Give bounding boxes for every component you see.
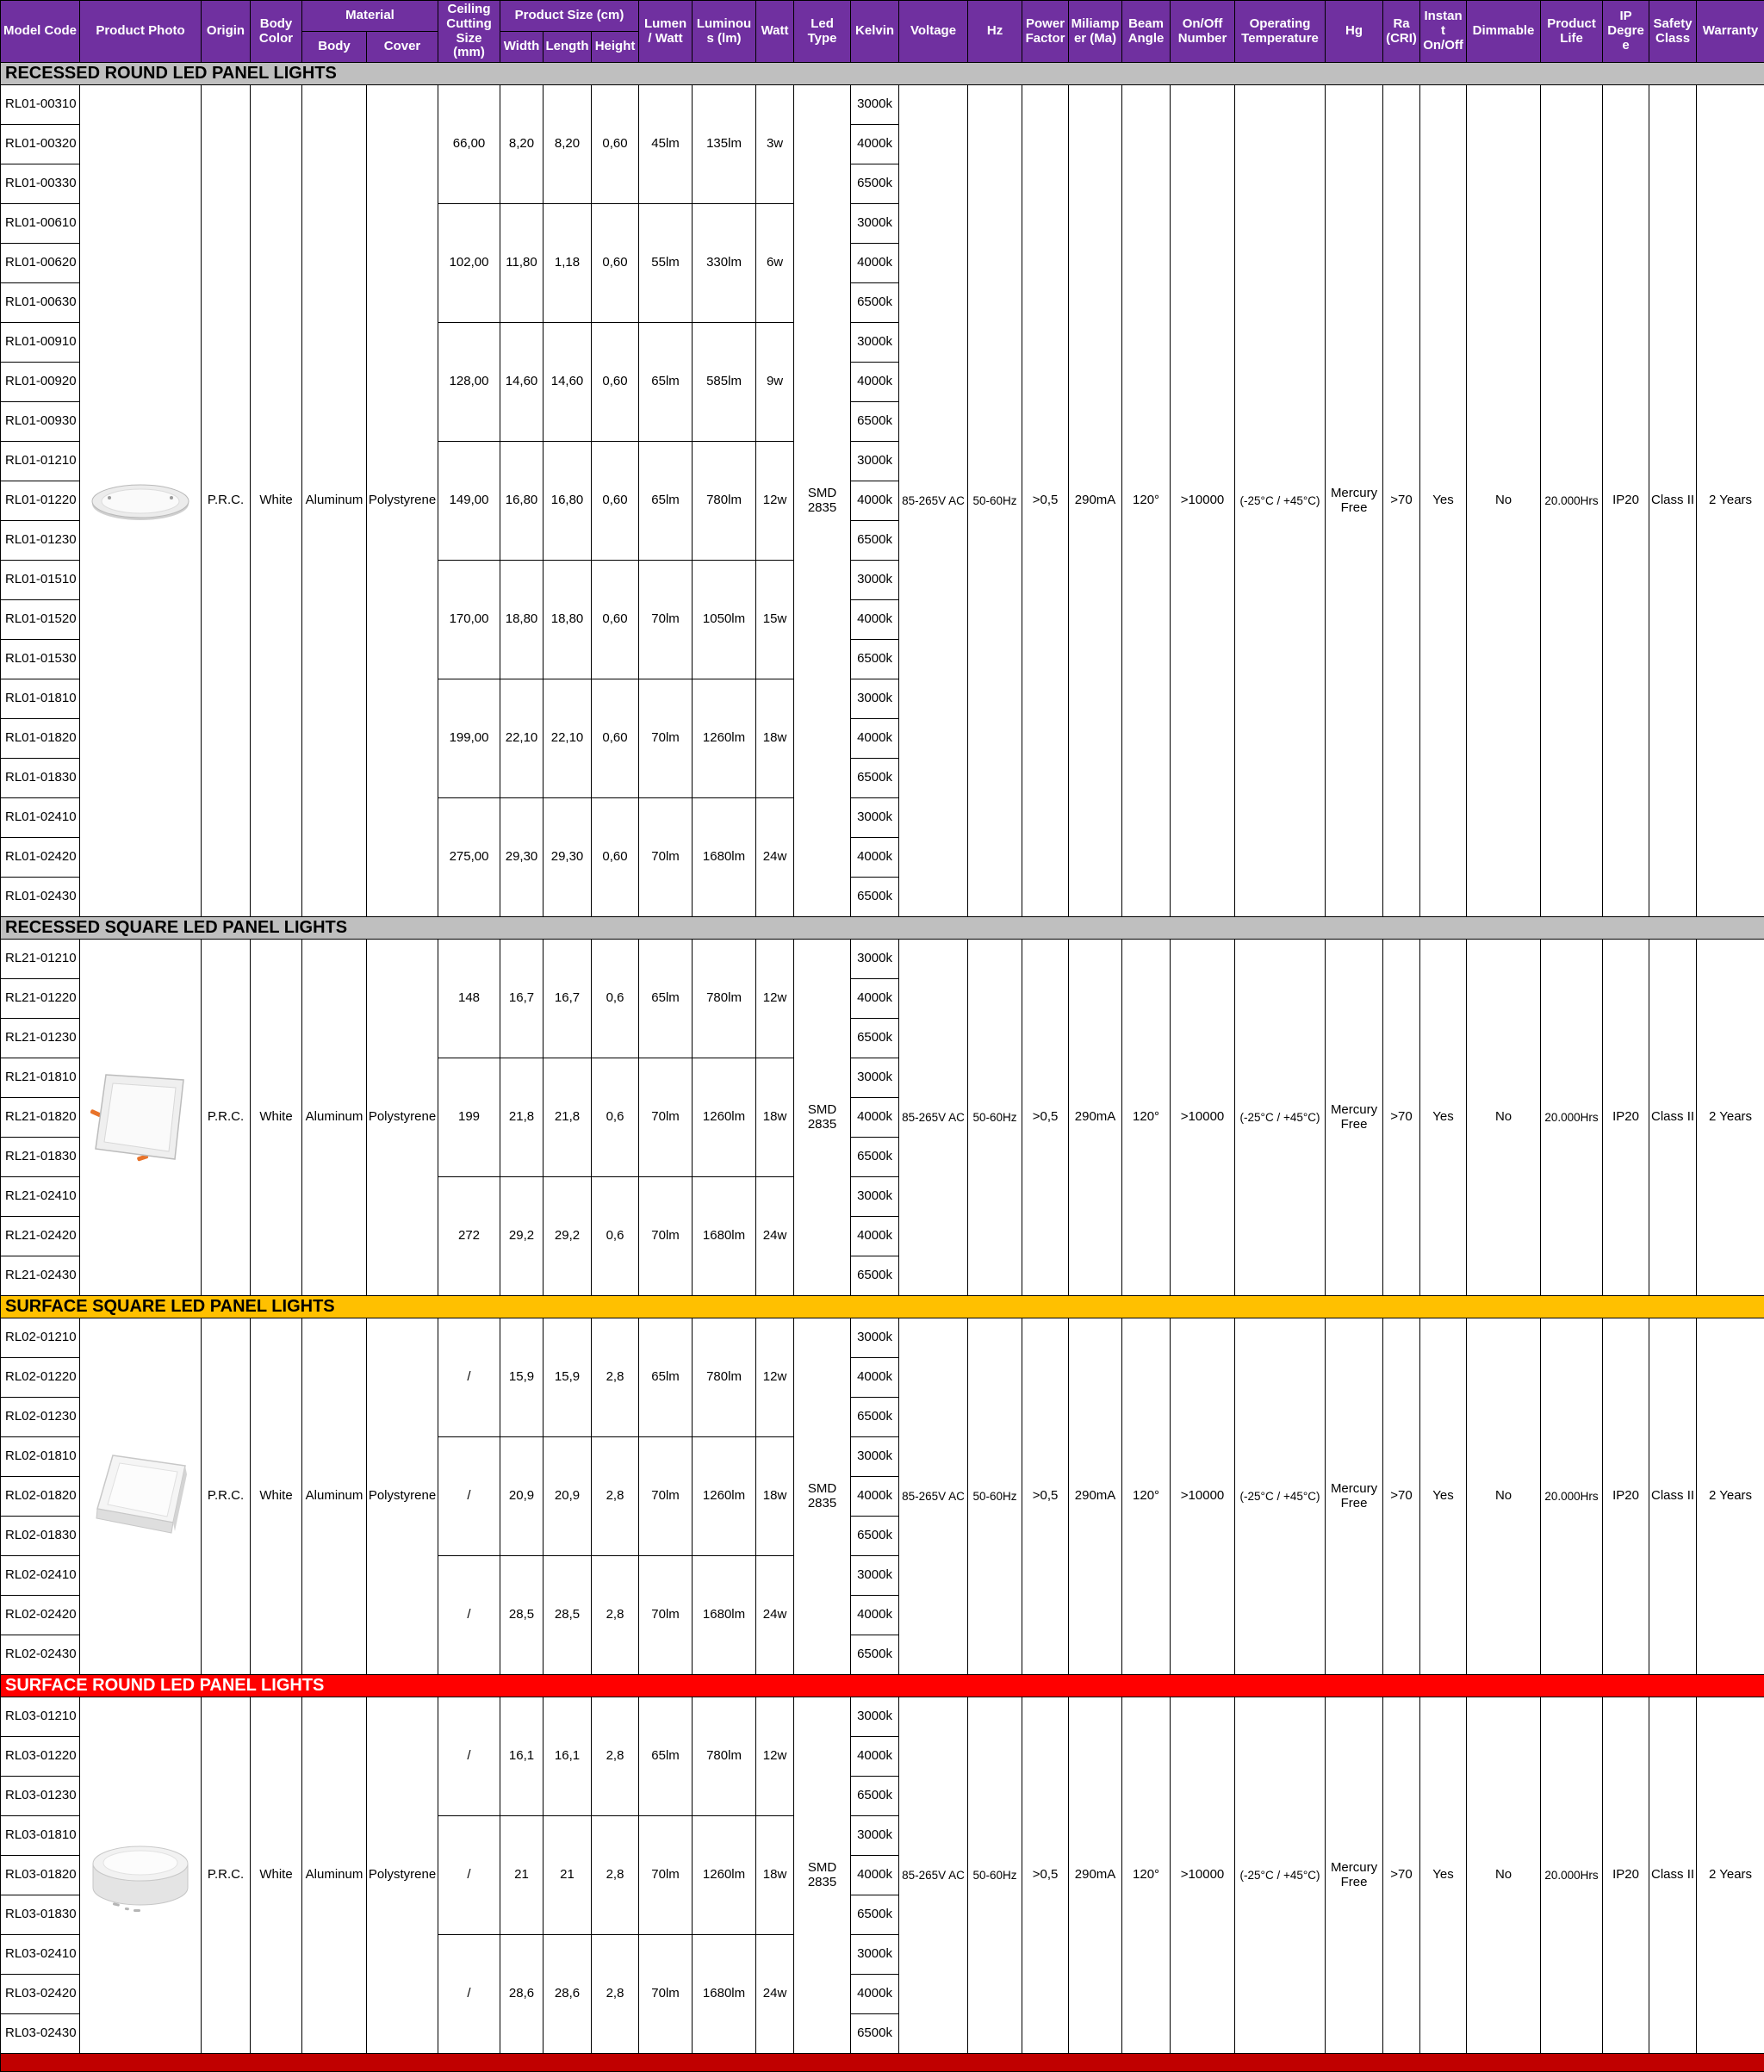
width-cell: 16,80	[500, 442, 543, 561]
model-code-cell: RL01-01830	[1, 759, 80, 798]
product-row: RL01-00310P.R.C.WhiteAluminumPolystyrene…	[1, 85, 1764, 125]
ceiling-cutting-cell: 102,00	[438, 204, 500, 323]
lumen-per-watt-cell: 70lm	[639, 561, 693, 679]
led-panel-spec-table: Model CodeProduct PhotoOriginBody ColorM…	[0, 0, 1764, 2072]
lumen-per-watt-cell: 45lm	[639, 85, 693, 204]
lumen-per-watt-cell: 55lm	[639, 204, 693, 323]
luminous-cell: 330lm	[693, 204, 756, 323]
beam-angle-cell: 120°	[1122, 1697, 1171, 2054]
ceiling-cutting-cell: 128,00	[438, 323, 500, 442]
model-code-cell: RL01-00620	[1, 244, 80, 283]
kelvin-cell: 4000k	[851, 1477, 899, 1517]
model-code-cell: RL02-01830	[1, 1517, 80, 1556]
model-code-cell: RL21-01830	[1, 1138, 80, 1177]
kelvin-cell: 6500k	[851, 521, 899, 561]
width-cell: 16,7	[500, 940, 543, 1058]
hg-cell: Mercury Free	[1326, 85, 1383, 917]
kelvin-cell: 6500k	[851, 2014, 899, 2054]
length-cell: 14,60	[543, 323, 592, 442]
kelvin-cell: 3000k	[851, 1177, 899, 1217]
ceiling-cutting-cell: 170,00	[438, 561, 500, 679]
height-cell: 0,60	[592, 561, 639, 679]
watt-cell: 18w	[756, 1058, 794, 1177]
column-subheader-body: Body	[302, 32, 367, 63]
model-code-cell: RL02-01230	[1, 1398, 80, 1437]
width-cell: 15,9	[500, 1318, 543, 1437]
kelvin-cell: 6500k	[851, 1398, 899, 1437]
dimmable-cell: No	[1467, 1318, 1541, 1675]
operating-temperature-cell: (-25°C / +45°C)	[1235, 85, 1326, 917]
kelvin-cell: 3000k	[851, 1697, 899, 1737]
model-code-cell: RL03-02420	[1, 1975, 80, 2014]
model-code-cell: RL03-01820	[1, 1856, 80, 1895]
height-cell: 0,60	[592, 442, 639, 561]
material-body-cell: Aluminum	[302, 85, 367, 917]
model-code-cell: RL01-00610	[1, 204, 80, 244]
ceiling-cutting-cell: 148	[438, 940, 500, 1058]
model-code-cell: RL01-01220	[1, 481, 80, 521]
product-photo-cell	[80, 85, 202, 917]
hg-cell: Mercury Free	[1326, 1318, 1383, 1675]
body-color-cell: White	[251, 1697, 302, 2054]
column-subheader-height: Height	[592, 32, 639, 63]
kelvin-cell: 3000k	[851, 1318, 899, 1358]
model-code-cell: RL03-01810	[1, 1816, 80, 1856]
kelvin-cell: 3000k	[851, 1556, 899, 1596]
model-code-cell: RL02-02430	[1, 1635, 80, 1675]
spec-sheet: Model CodeProduct PhotoOriginBody ColorM…	[0, 0, 1764, 2072]
model-code-cell: RL02-02420	[1, 1596, 80, 1635]
lumen-per-watt-cell: 65lm	[639, 1697, 693, 1816]
miliamper-cell: 290mA	[1069, 85, 1122, 917]
ceiling-cutting-cell: 199	[438, 1058, 500, 1177]
kelvin-cell: 4000k	[851, 1737, 899, 1777]
hg-cell: Mercury Free	[1326, 940, 1383, 1296]
model-code-cell: RL01-01210	[1, 442, 80, 481]
warranty-cell: 2 Years	[1697, 1697, 1764, 2054]
product-photo-cell	[80, 940, 202, 1296]
watt-cell: 24w	[756, 1556, 794, 1675]
width-cell: 14,60	[500, 323, 543, 442]
height-cell: 0,6	[592, 940, 639, 1058]
ip-degree-cell: IP20	[1603, 1697, 1649, 2054]
model-code-cell: RL01-00330	[1, 164, 80, 204]
luminous-cell: 780lm	[693, 1318, 756, 1437]
kelvin-cell: 3000k	[851, 1816, 899, 1856]
width-cell: 16,1	[500, 1697, 543, 1816]
column-subheader-length: Length	[543, 32, 592, 63]
column-header-operating-temperature: Operating Temperature	[1235, 1, 1326, 63]
kelvin-cell: 3000k	[851, 679, 899, 719]
model-code-cell: RL21-01820	[1, 1098, 80, 1138]
column-header-ip-degree: IP Degree	[1603, 1, 1649, 63]
kelvin-cell: 4000k	[851, 719, 899, 759]
width-cell: 21,8	[500, 1058, 543, 1177]
model-code-cell: RL01-00920	[1, 363, 80, 402]
column-header-lumen-watt: Lumen / Watt	[639, 1, 693, 63]
lumen-per-watt-cell: 70lm	[639, 1556, 693, 1675]
kelvin-cell: 4000k	[851, 125, 899, 164]
table-body: RECESSED ROUND LED PANEL LIGHTSRL01-0031…	[1, 63, 1764, 2072]
section-title: RECESSED SQUARE LED PANEL LIGHTS	[1, 917, 1764, 940]
ceiling-cutting-cell: 149,00	[438, 442, 500, 561]
product-life-cell: 20.000Hrs	[1541, 940, 1603, 1296]
beam-angle-cell: 120°	[1122, 940, 1171, 1296]
model-code-cell: RL21-01210	[1, 940, 80, 979]
dimmable-cell: No	[1467, 85, 1541, 917]
model-code-cell: RL02-01810	[1, 1437, 80, 1477]
luminous-cell: 1050lm	[693, 561, 756, 679]
ceiling-cutting-cell: /	[438, 1437, 500, 1556]
model-code-cell: RL01-00320	[1, 125, 80, 164]
beam-angle-cell: 120°	[1122, 85, 1171, 917]
instant-on-off-cell: Yes	[1420, 1697, 1467, 2054]
column-header-led-type: Led Type	[794, 1, 851, 63]
model-code-cell: RL03-01220	[1, 1737, 80, 1777]
model-code-cell: RL03-01210	[1, 1697, 80, 1737]
led-type-cell: SMD 2835	[794, 940, 851, 1296]
product-row: RL03-01210P.R.C.WhiteAluminumPolystyrene…	[1, 1697, 1764, 1737]
power-factor-cell: >0,5	[1022, 85, 1069, 917]
model-code-cell: RL03-02410	[1, 1935, 80, 1975]
column-header-hg: Hg	[1326, 1, 1383, 63]
ceiling-cutting-cell: 272	[438, 1177, 500, 1296]
model-code-cell: RL01-00930	[1, 402, 80, 442]
width-cell: 28,5	[500, 1556, 543, 1675]
watt-cell: 24w	[756, 798, 794, 917]
lumen-per-watt-cell: 65lm	[639, 323, 693, 442]
model-code-cell: RL03-01230	[1, 1777, 80, 1816]
kelvin-cell: 6500k	[851, 283, 899, 323]
column-header-hz: Hz	[968, 1, 1022, 63]
width-cell: 28,6	[500, 1935, 543, 2054]
safety-class-cell: Class II	[1649, 940, 1697, 1296]
lumen-per-watt-cell: 70lm	[639, 1816, 693, 1935]
column-header-body-color: Body Color	[251, 1, 302, 63]
section-title: SURFACE ROUND LED PANEL LIGHTS	[1, 1675, 1764, 1697]
luminous-cell: 1680lm	[693, 1935, 756, 2054]
material-cover-cell: Polystyrene	[367, 1697, 438, 2054]
kelvin-cell: 4000k	[851, 979, 899, 1019]
ra-cri-cell: >70	[1383, 85, 1420, 917]
column-header-instant-on-off: Instant On/Off	[1420, 1, 1467, 63]
product-row: RL02-01210P.R.C.WhiteAluminumPolystyrene…	[1, 1318, 1764, 1358]
watt-cell: 12w	[756, 940, 794, 1058]
kelvin-cell: 4000k	[851, 1098, 899, 1138]
product-life-cell: 20.000Hrs	[1541, 85, 1603, 917]
dimmable-cell: No	[1467, 940, 1541, 1296]
safety-class-cell: Class II	[1649, 1318, 1697, 1675]
lumen-per-watt-cell: 70lm	[639, 798, 693, 917]
model-code-cell: RL01-01230	[1, 521, 80, 561]
luminous-cell: 1260lm	[693, 1437, 756, 1556]
watt-cell: 15w	[756, 561, 794, 679]
material-cover-cell: Polystyrene	[367, 1318, 438, 1675]
model-code-cell: RL02-02410	[1, 1556, 80, 1596]
origin-cell: P.R.C.	[202, 1318, 251, 1675]
on-off-number-cell: >10000	[1171, 1318, 1235, 1675]
hz-cell: 50-60Hz	[968, 940, 1022, 1296]
model-code-cell: RL21-02410	[1, 1177, 80, 1217]
column-header-product-size: Product Size (cm)	[500, 1, 639, 32]
kelvin-cell: 6500k	[851, 1517, 899, 1556]
height-cell: 0,60	[592, 323, 639, 442]
column-subheader-cover: Cover	[367, 32, 438, 63]
luminous-cell: 135lm	[693, 85, 756, 204]
watt-cell: 6w	[756, 204, 794, 323]
ceiling-cutting-cell: /	[438, 1556, 500, 1675]
kelvin-cell: 3000k	[851, 85, 899, 125]
luminous-cell: 1260lm	[693, 1816, 756, 1935]
model-code-cell: RL02-01210	[1, 1318, 80, 1358]
model-code-cell: RL02-01820	[1, 1477, 80, 1517]
kelvin-cell: 6500k	[851, 1635, 899, 1675]
column-header-material: Material	[302, 1, 438, 32]
watt-cell: 18w	[756, 679, 794, 798]
model-code-cell: RL02-01220	[1, 1358, 80, 1398]
power-factor-cell: >0,5	[1022, 940, 1069, 1296]
length-cell: 29,2	[543, 1177, 592, 1296]
material-cover-cell: Polystyrene	[367, 940, 438, 1296]
watt-cell: 9w	[756, 323, 794, 442]
voltage-cell: 85-265V AC	[899, 1697, 968, 2054]
dimmable-cell: No	[1467, 1697, 1541, 2054]
ra-cri-cell: >70	[1383, 1697, 1420, 2054]
height-cell: 0,60	[592, 85, 639, 204]
kelvin-cell: 3000k	[851, 442, 899, 481]
length-cell: 16,7	[543, 940, 592, 1058]
column-header-product-photo: Product Photo	[80, 1, 202, 63]
width-cell: 11,80	[500, 204, 543, 323]
width-cell: 21	[500, 1816, 543, 1935]
led-type-cell: SMD 2835	[794, 1697, 851, 2054]
kelvin-cell: 4000k	[851, 244, 899, 283]
length-cell: 21,8	[543, 1058, 592, 1177]
model-code-cell: RL01-01530	[1, 640, 80, 679]
watt-cell: 12w	[756, 1318, 794, 1437]
hz-cell: 50-60Hz	[968, 1318, 1022, 1675]
width-cell: 18,80	[500, 561, 543, 679]
column-header-safety-class: Safety Class	[1649, 1, 1697, 63]
miliamper-cell: 290mA	[1069, 1697, 1122, 2054]
product-row: RL21-01210P.R.C.WhiteAluminumPolystyrene…	[1, 940, 1764, 979]
kelvin-cell: 3000k	[851, 940, 899, 979]
kelvin-cell: 4000k	[851, 1975, 899, 2014]
operating-temperature-cell: (-25°C / +45°C)	[1235, 1697, 1326, 2054]
height-cell: 2,8	[592, 1935, 639, 2054]
model-code-cell: RL01-00310	[1, 85, 80, 125]
model-code-cell: RL01-00910	[1, 323, 80, 363]
model-code-cell: RL21-02430	[1, 1256, 80, 1296]
watt-cell: 12w	[756, 442, 794, 561]
kelvin-cell: 6500k	[851, 640, 899, 679]
column-header-product-life: Product Life	[1541, 1, 1603, 63]
voltage-cell: 85-265V AC	[899, 1318, 968, 1675]
kelvin-cell: 3000k	[851, 323, 899, 363]
model-code-cell: RL03-02430	[1, 2014, 80, 2054]
height-cell: 0,60	[592, 204, 639, 323]
length-cell: 22,10	[543, 679, 592, 798]
column-header-luminous: Luminous (lm)	[693, 1, 756, 63]
ip-degree-cell: IP20	[1603, 940, 1649, 1296]
model-code-cell: RL01-01810	[1, 679, 80, 719]
kelvin-cell: 4000k	[851, 363, 899, 402]
ceiling-cutting-cell: /	[438, 1935, 500, 2054]
column-header-on-off-number: On/Off Number	[1171, 1, 1235, 63]
kelvin-cell: 6500k	[851, 878, 899, 917]
column-header-warranty: Warranty	[1697, 1, 1764, 63]
kelvin-cell: 6500k	[851, 1256, 899, 1296]
width-cell: 8,20	[500, 85, 543, 204]
model-code-cell: RL01-01820	[1, 719, 80, 759]
column-header-voltage: Voltage	[899, 1, 968, 63]
kelvin-cell: 4000k	[851, 1596, 899, 1635]
luminous-cell: 1260lm	[693, 679, 756, 798]
safety-class-cell: Class II	[1649, 85, 1697, 917]
miliamper-cell: 290mA	[1069, 1318, 1122, 1675]
model-code-cell: RL03-01830	[1, 1895, 80, 1935]
on-off-number-cell: >10000	[1171, 1697, 1235, 2054]
beam-angle-cell: 120°	[1122, 1318, 1171, 1675]
column-header-watt: Watt	[756, 1, 794, 63]
kelvin-cell: 3000k	[851, 798, 899, 838]
lumen-per-watt-cell: 70lm	[639, 1437, 693, 1556]
surface-round-panel-photo	[84, 1831, 197, 1920]
model-code-cell: RL01-02430	[1, 878, 80, 917]
ra-cri-cell: >70	[1383, 1318, 1420, 1675]
length-cell: 20,9	[543, 1437, 592, 1556]
ip-degree-cell: IP20	[1603, 85, 1649, 917]
warranty-cell: 2 Years	[1697, 1318, 1764, 1675]
kelvin-cell: 6500k	[851, 1895, 899, 1935]
origin-cell: P.R.C.	[202, 85, 251, 917]
lumen-per-watt-cell: 65lm	[639, 1318, 693, 1437]
height-cell: 2,8	[592, 1556, 639, 1675]
ceiling-cutting-cell: /	[438, 1816, 500, 1935]
width-cell: 29,30	[500, 798, 543, 917]
height-cell: 2,8	[592, 1437, 639, 1556]
model-code-cell: RL21-01810	[1, 1058, 80, 1098]
material-body-cell: Aluminum	[302, 1318, 367, 1675]
led-type-cell: SMD 2835	[794, 1318, 851, 1675]
hg-cell: Mercury Free	[1326, 1697, 1383, 2054]
kelvin-cell: 4000k	[851, 1358, 899, 1398]
watt-cell: 3w	[756, 85, 794, 204]
luminous-cell: 1260lm	[693, 1058, 756, 1177]
kelvin-cell: 6500k	[851, 1138, 899, 1177]
model-code-cell: RL21-02420	[1, 1217, 80, 1256]
kelvin-cell: 4000k	[851, 1217, 899, 1256]
watt-cell: 18w	[756, 1816, 794, 1935]
luminous-cell: 780lm	[693, 442, 756, 561]
luminous-cell: 585lm	[693, 323, 756, 442]
voltage-cell: 85-265V AC	[899, 85, 968, 917]
hz-cell: 50-60Hz	[968, 85, 1022, 917]
length-cell: 8,20	[543, 85, 592, 204]
on-off-number-cell: >10000	[1171, 940, 1235, 1296]
body-color-cell: White	[251, 940, 302, 1296]
luminous-cell: 1680lm	[693, 1177, 756, 1296]
kelvin-cell: 3000k	[851, 204, 899, 244]
hz-cell: 50-60Hz	[968, 1697, 1022, 2054]
ip-degree-cell: IP20	[1603, 1318, 1649, 1675]
warranty-cell: 2 Years	[1697, 85, 1764, 917]
warranty-cell: 2 Years	[1697, 940, 1764, 1296]
column-header-kelvin: Kelvin	[851, 1, 899, 63]
ra-cri-cell: >70	[1383, 940, 1420, 1296]
lumen-per-watt-cell: 70lm	[639, 1058, 693, 1177]
length-cell: 18,80	[543, 561, 592, 679]
footer-bar	[1, 2054, 1764, 2072]
kelvin-cell: 4000k	[851, 600, 899, 640]
model-code-cell: RL01-02420	[1, 838, 80, 878]
material-cover-cell: Polystyrene	[367, 85, 438, 917]
recessed-round-panel-photo	[84, 464, 197, 538]
ceiling-cutting-cell: /	[438, 1318, 500, 1437]
ceiling-cutting-cell: /	[438, 1697, 500, 1816]
height-cell: 2,8	[592, 1816, 639, 1935]
column-header-ra-cri: Ra (CRI)	[1383, 1, 1420, 63]
product-photo-cell	[80, 1697, 202, 2054]
origin-cell: P.R.C.	[202, 940, 251, 1296]
column-header-origin: Origin	[202, 1, 251, 63]
watt-cell: 24w	[756, 1177, 794, 1296]
kelvin-cell: 3000k	[851, 561, 899, 600]
recessed-square-panel-photo	[84, 1066, 197, 1169]
luminous-cell: 780lm	[693, 940, 756, 1058]
operating-temperature-cell: (-25°C / +45°C)	[1235, 1318, 1326, 1675]
lumen-per-watt-cell: 70lm	[639, 1935, 693, 2054]
kelvin-cell: 3000k	[851, 1058, 899, 1098]
height-cell: 2,8	[592, 1697, 639, 1816]
width-cell: 29,2	[500, 1177, 543, 1296]
model-code-cell: RL01-01520	[1, 600, 80, 640]
voltage-cell: 85-265V AC	[899, 940, 968, 1296]
instant-on-off-cell: Yes	[1420, 85, 1467, 917]
product-life-cell: 20.000Hrs	[1541, 1318, 1603, 1675]
length-cell: 28,5	[543, 1556, 592, 1675]
length-cell: 21	[543, 1816, 592, 1935]
origin-cell: P.R.C.	[202, 1697, 251, 2054]
operating-temperature-cell: (-25°C / +45°C)	[1235, 940, 1326, 1296]
watt-cell: 18w	[756, 1437, 794, 1556]
model-code-cell: RL01-01510	[1, 561, 80, 600]
length-cell: 16,1	[543, 1697, 592, 1816]
height-cell: 0,60	[592, 679, 639, 798]
section-title: SURFACE SQUARE LED PANEL LIGHTS	[1, 1296, 1764, 1318]
lumen-per-watt-cell: 65lm	[639, 442, 693, 561]
body-color-cell: White	[251, 1318, 302, 1675]
material-body-cell: Aluminum	[302, 1697, 367, 2054]
watt-cell: 12w	[756, 1697, 794, 1816]
ceiling-cutting-cell: 66,00	[438, 85, 500, 204]
watt-cell: 24w	[756, 1935, 794, 2054]
height-cell: 2,8	[592, 1318, 639, 1437]
luminous-cell: 1680lm	[693, 1556, 756, 1675]
instant-on-off-cell: Yes	[1420, 940, 1467, 1296]
kelvin-cell: 6500k	[851, 164, 899, 204]
ceiling-cutting-cell: 275,00	[438, 798, 500, 917]
section-title: RECESSED ROUND LED PANEL LIGHTS	[1, 63, 1764, 85]
height-cell: 0,6	[592, 1177, 639, 1296]
length-cell: 1,18	[543, 204, 592, 323]
kelvin-cell: 3000k	[851, 1437, 899, 1477]
column-header-model-code: Model Code	[1, 1, 80, 63]
safety-class-cell: Class II	[1649, 1697, 1697, 2054]
luminous-cell: 1680lm	[693, 798, 756, 917]
model-code-cell: RL21-01230	[1, 1019, 80, 1058]
product-life-cell: 20.000Hrs	[1541, 1697, 1603, 2054]
